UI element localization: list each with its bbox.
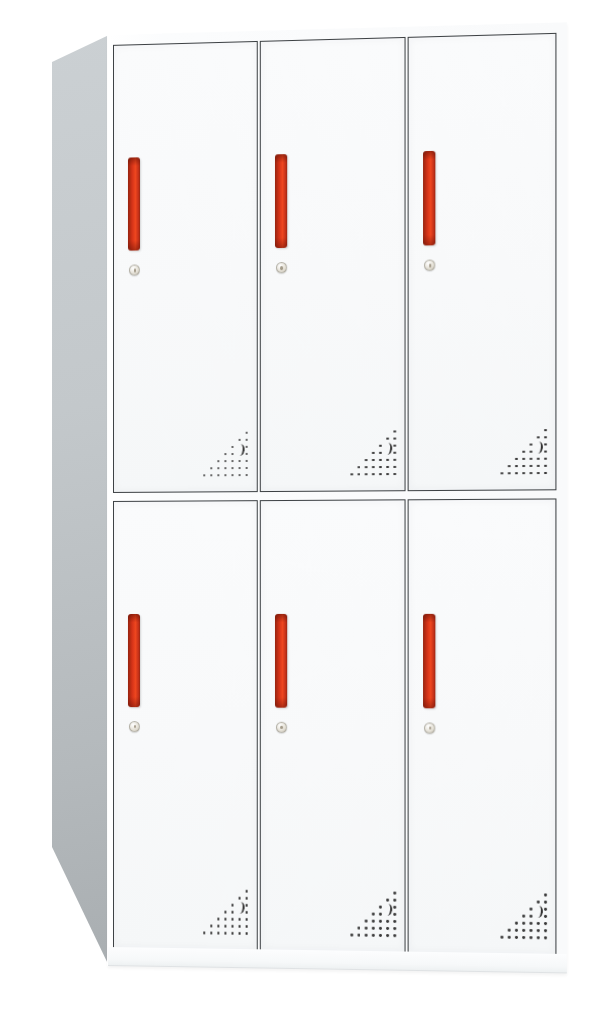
vent-hole	[394, 465, 397, 468]
keyhole-icon	[133, 269, 136, 273]
keyhole-icon	[280, 725, 283, 729]
vent-hole	[394, 437, 397, 440]
vent-hole	[231, 474, 234, 477]
vent-hole	[351, 934, 354, 937]
vent-hole	[203, 474, 206, 477]
vent-hole	[394, 906, 397, 909]
vent-hole	[379, 906, 382, 909]
vent-hole	[500, 936, 503, 939]
vent-hole	[394, 473, 397, 476]
vent-hole	[544, 908, 547, 911]
vent-hole	[379, 458, 382, 461]
vent-hole	[394, 444, 397, 447]
vent-hole	[224, 925, 227, 928]
vent-hole	[537, 464, 540, 467]
vent-hole	[537, 922, 540, 925]
vent-hole	[544, 464, 547, 467]
vent-hole	[372, 927, 375, 930]
vent-hole	[544, 429, 547, 432]
vent-hole	[231, 918, 234, 921]
vent-hole	[544, 922, 547, 925]
vent-hole	[372, 934, 375, 937]
vent-hole	[365, 459, 368, 462]
vent-hole	[394, 934, 397, 937]
vent-hole	[231, 925, 234, 928]
vent-hole	[238, 925, 241, 928]
vent-hole	[365, 473, 368, 476]
vent-hole	[537, 472, 540, 475]
cam-lock[interactable]	[129, 264, 140, 275]
vent-hole	[379, 451, 382, 454]
vent-hole	[245, 904, 248, 907]
vent-holes	[349, 428, 400, 479]
vent-holes	[201, 887, 251, 938]
vent-hole	[217, 918, 220, 921]
door-handle[interactable]	[128, 157, 140, 250]
vent-hole	[238, 459, 241, 462]
keyhole-icon	[280, 266, 283, 270]
vent-hole	[245, 459, 248, 462]
vent-hole	[394, 913, 397, 916]
vent-hole	[386, 437, 389, 440]
vent-hole	[379, 920, 382, 923]
door-handle[interactable]	[275, 613, 287, 707]
vent-hole	[394, 430, 397, 433]
vent-hole	[394, 892, 397, 895]
cam-lock[interactable]	[424, 260, 435, 271]
vent-hole	[529, 464, 532, 467]
vent-hole	[522, 450, 525, 453]
cam-lock[interactable]	[276, 262, 287, 273]
vent-hole	[217, 460, 220, 463]
vent-hole	[245, 932, 248, 935]
vent-hole	[231, 911, 234, 914]
keyhole-icon	[429, 726, 432, 730]
vent-crescent-icon	[533, 441, 544, 454]
vent-hole	[224, 474, 227, 477]
vent-hole	[365, 920, 368, 923]
vent-holes	[498, 427, 550, 478]
vent-hole	[203, 931, 206, 934]
vent-hole	[358, 927, 361, 930]
vent-holes	[498, 891, 550, 943]
vent-hole	[386, 899, 389, 902]
vent-hole	[245, 438, 248, 441]
vent-hole	[500, 472, 503, 475]
vent-hole	[386, 458, 389, 461]
vent-hole	[245, 474, 248, 477]
vent-hole	[515, 457, 518, 460]
cabinet-front	[108, 22, 567, 973]
vent-hole	[529, 936, 532, 939]
vent-hole	[522, 922, 525, 925]
vent-hole	[224, 453, 227, 456]
vent-hole	[386, 934, 389, 937]
vent-hole	[394, 899, 397, 902]
vent-hole	[515, 929, 518, 932]
vent-hole	[537, 936, 540, 939]
vent-hole	[231, 904, 234, 907]
vent-hole	[372, 473, 375, 476]
vent-hole	[245, 897, 248, 900]
vent-hole	[379, 927, 382, 930]
vent-hole	[529, 450, 532, 453]
vent-hole	[245, 911, 248, 914]
cam-lock[interactable]	[424, 722, 435, 733]
vent-hole	[515, 472, 518, 475]
keyhole-icon	[133, 725, 136, 729]
vent-hole	[522, 936, 525, 939]
vent-hole	[210, 931, 213, 934]
door-grid	[113, 33, 556, 955]
vent-hole	[224, 460, 227, 463]
vent-hole	[224, 467, 227, 470]
vent-hole	[217, 474, 220, 477]
vent-hole	[522, 464, 525, 467]
vent-hole	[379, 444, 382, 447]
vent-hole	[544, 929, 547, 932]
vent-hole	[537, 457, 540, 460]
vent-hole	[544, 901, 547, 904]
vent-hole	[358, 473, 361, 476]
vent-hole	[365, 934, 368, 937]
vent-hole	[372, 913, 375, 916]
vent-hole	[394, 458, 397, 461]
cabinet-side-panel	[52, 35, 109, 966]
vent-hole	[394, 920, 397, 923]
vent-hole	[529, 457, 532, 460]
vent-hole	[358, 934, 361, 937]
vent-hole	[372, 451, 375, 454]
vent-hole	[238, 467, 241, 470]
vent-hole	[231, 445, 234, 448]
vent-hole	[245, 452, 248, 455]
door-handle[interactable]	[423, 613, 435, 707]
product-photo	[0, 0, 605, 1009]
vent-hole	[544, 936, 547, 939]
vent-hole	[529, 472, 532, 475]
vent-hole	[386, 927, 389, 930]
vent-holes	[201, 429, 251, 480]
vent-hole	[544, 915, 547, 918]
vent-hole	[245, 466, 248, 469]
vent-hole	[544, 457, 547, 460]
vent-hole	[217, 932, 220, 935]
vent-hole	[515, 922, 518, 925]
vent-crescent-icon	[235, 443, 245, 456]
vent-hole	[210, 924, 213, 927]
locker-door[interactable]	[408, 33, 556, 491]
vent-hole	[544, 471, 547, 474]
vent-hole	[386, 465, 389, 468]
vent-hole	[537, 436, 540, 439]
vent-hole	[245, 431, 248, 434]
vent-crescent-icon	[533, 905, 544, 918]
cam-lock[interactable]	[129, 721, 140, 732]
locker-door[interactable]	[259, 37, 405, 492]
vent-hole	[508, 472, 511, 475]
vent-hole	[379, 466, 382, 469]
vent-crescent-icon	[383, 903, 393, 916]
vent-hole	[379, 913, 382, 916]
vent-hole	[245, 918, 248, 921]
vent-hole	[372, 920, 375, 923]
vent-hole	[231, 460, 234, 463]
vent-hole	[231, 467, 234, 470]
vent-hole	[522, 929, 525, 932]
vent-hole	[379, 473, 382, 476]
vent-hole	[224, 932, 227, 935]
vent-hole	[365, 466, 368, 469]
vent-hole	[238, 474, 241, 477]
door-handle[interactable]	[275, 154, 287, 248]
vent-hole	[522, 457, 525, 460]
vent-hole	[238, 897, 241, 900]
vent-hole	[365, 927, 368, 930]
vent-hole	[529, 443, 532, 446]
locker-door[interactable]	[113, 41, 257, 493]
vent-hole	[515, 465, 518, 468]
vent-hole	[358, 466, 361, 469]
vent-hole	[544, 893, 547, 896]
vent-hole	[544, 436, 547, 439]
keyhole-icon	[429, 264, 432, 268]
vent-hole	[537, 901, 540, 904]
vent-hole	[245, 445, 248, 448]
vent-hole	[508, 465, 511, 468]
locker-door[interactable]	[408, 498, 556, 955]
door-handle[interactable]	[128, 613, 140, 706]
vent-hole	[231, 932, 234, 935]
vent-hole	[379, 934, 382, 937]
vent-hole	[224, 911, 227, 914]
vent-hole	[245, 890, 248, 893]
vent-hole	[544, 450, 547, 453]
vent-hole	[217, 925, 220, 928]
vent-hole	[515, 936, 518, 939]
vent-hole	[224, 918, 227, 921]
vent-hole	[522, 915, 525, 918]
vent-hole	[372, 466, 375, 469]
locker-door[interactable]	[113, 500, 257, 951]
vent-hole	[529, 922, 532, 925]
vent-hole	[210, 474, 213, 477]
vent-hole	[394, 927, 397, 930]
vent-hole	[508, 936, 511, 939]
vent-hole	[238, 932, 241, 935]
vent-hole	[529, 915, 532, 918]
vent-hole	[231, 453, 234, 456]
vent-hole	[529, 908, 532, 911]
vent-hole	[238, 438, 241, 441]
vent-hole	[351, 473, 354, 476]
locker-door[interactable]	[259, 499, 405, 953]
vent-hole	[508, 929, 511, 932]
cam-lock[interactable]	[276, 721, 287, 732]
vent-hole	[544, 443, 547, 446]
vent-hole	[394, 451, 397, 454]
vent-hole	[238, 918, 241, 921]
vent-hole	[522, 472, 525, 475]
vent-hole	[386, 920, 389, 923]
vent-hole	[245, 925, 248, 928]
vent-hole	[372, 458, 375, 461]
vent-hole	[386, 473, 389, 476]
vent-hole	[210, 467, 213, 470]
vent-crescent-icon	[383, 442, 393, 455]
vent-hole	[529, 929, 532, 932]
vent-holes	[349, 889, 400, 940]
vent-crescent-icon	[235, 901, 245, 914]
door-handle[interactable]	[423, 151, 435, 246]
vent-hole	[537, 929, 540, 932]
vent-hole	[217, 467, 220, 470]
